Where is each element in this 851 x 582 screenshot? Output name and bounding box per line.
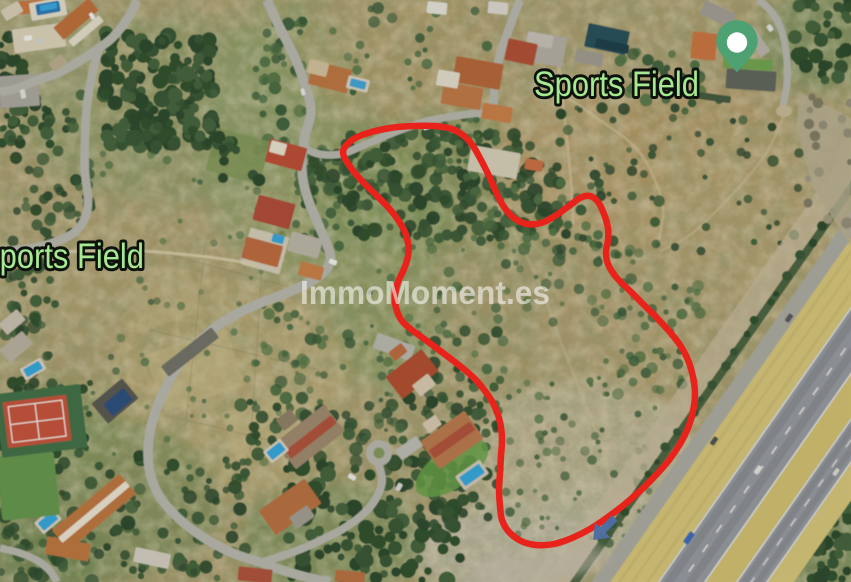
svg-text:Sports Field: Sports Field [534,64,699,104]
svg-text:Sports Field: Sports Field [0,236,144,276]
svg-text:ImmoMoment.es: ImmoMoment.es [300,274,550,311]
